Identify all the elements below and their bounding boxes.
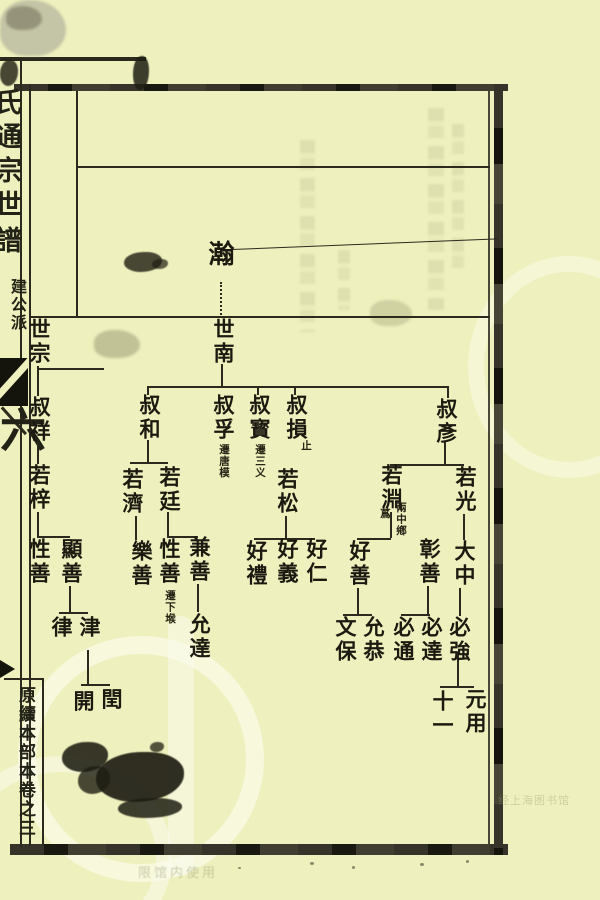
connector-line <box>357 588 359 614</box>
row-rule-upper <box>76 166 490 168</box>
connector-line <box>197 584 199 612</box>
ink-smudge <box>150 742 164 752</box>
person-name: 瀚 <box>209 240 232 269</box>
ink-smudge <box>152 259 168 269</box>
person-name: 叔寳 <box>246 394 269 442</box>
connector-line <box>135 516 137 540</box>
bleedthrough-column <box>300 140 315 332</box>
person-name: 閏 <box>98 688 121 712</box>
person-name: 性善 <box>26 538 49 586</box>
connector-line <box>459 588 461 616</box>
person-name: 元用 <box>462 688 485 736</box>
spine-title-char: 宗 <box>0 156 26 183</box>
spine-bracket-side <box>42 678 44 846</box>
connector-line <box>37 442 39 464</box>
person-name: 必強 <box>446 616 469 664</box>
connector-line <box>81 684 110 686</box>
person-note: 遷三义 <box>251 444 264 479</box>
person-name: 叔損 <box>283 394 306 442</box>
person-name: 若廷 <box>156 466 179 514</box>
person-name: 叔孚 <box>210 394 233 442</box>
person-name: 樂善 <box>128 540 151 588</box>
spine-title-char: 世 <box>0 190 26 217</box>
person-name: 必達 <box>418 616 441 664</box>
scanned-genealogy-page: 氏 通 宗 世 譜 建公派 六 原續本部本卷之三 瀚 世南 <box>0 0 600 900</box>
person-name: 允恭 <box>360 616 383 664</box>
connector-line <box>427 586 429 614</box>
row-rule-generation <box>29 316 490 318</box>
connector-line <box>147 386 449 388</box>
connector-dotted <box>220 282 222 318</box>
connector-line <box>447 386 449 398</box>
person-note: 兩中鄕 <box>392 502 405 537</box>
person-name: 大中 <box>451 540 474 588</box>
ink-smudge <box>118 798 182 818</box>
connector-line <box>167 512 169 536</box>
person-name: 好善 <box>346 540 369 588</box>
spine-pointer-mark <box>0 660 15 678</box>
person-name: 律 <box>48 616 71 640</box>
spine-title-char: 氏 <box>0 88 26 115</box>
person-name: 世南 <box>210 318 233 366</box>
spine-top-rule <box>0 57 146 61</box>
connector-line <box>37 512 39 536</box>
person-name: 好義 <box>274 538 297 586</box>
column-rule <box>76 91 78 317</box>
scan-speck <box>310 862 314 865</box>
person-name: 叔祥 <box>26 396 49 444</box>
person-name: 好禮 <box>243 540 266 588</box>
scan-speck <box>466 860 469 863</box>
ink-blotch <box>0 60 18 86</box>
page-right-border <box>494 84 503 855</box>
spine-bracket-top <box>4 678 42 680</box>
connector-line <box>87 650 89 684</box>
person-name: 津 <box>76 616 99 640</box>
person-note: 遷下堠 <box>161 590 174 625</box>
person-name: 文保 <box>332 616 355 664</box>
spine-branch-label: 建公派 <box>4 278 28 332</box>
connector-line <box>463 514 465 540</box>
connector-line <box>285 516 287 538</box>
person-name: 叔彥 <box>433 398 456 446</box>
page-bottom-border <box>10 844 508 855</box>
person-name: 叔和 <box>136 394 159 442</box>
connector-line <box>37 368 104 370</box>
spine-title-char: 譜 <box>0 226 26 253</box>
watermark-library-text: 经上海图书馆 <box>498 792 570 808</box>
person-name: 性善 <box>156 538 179 586</box>
person-note: 止 <box>297 440 310 452</box>
person-note: 蔿 <box>376 508 389 520</box>
fishtail-notch <box>0 358 28 406</box>
bleedthrough-smudge <box>94 330 140 358</box>
spine-title-char: 通 <box>0 122 26 149</box>
watermark-usage-text: 限馆内使用 <box>138 862 218 881</box>
fishtail-tab <box>0 358 28 406</box>
person-name: 好仁 <box>303 538 326 586</box>
connector-line <box>147 440 149 462</box>
connector-line <box>69 586 71 612</box>
person-name: 必通 <box>390 616 413 664</box>
person-name: 彰善 <box>416 538 439 586</box>
connector-line <box>221 364 223 386</box>
scan-shadow-dark <box>6 6 42 30</box>
spine-bottom-label: 原續本部本卷之三 <box>13 686 38 838</box>
person-name: 世宗 <box>26 318 49 366</box>
scan-speck <box>420 863 424 866</box>
person-name: 若濟 <box>119 468 142 516</box>
bleedthrough-smudge <box>370 300 412 326</box>
page-top-border <box>14 84 508 91</box>
person-name: 開 <box>70 690 93 714</box>
bleedthrough-column <box>338 250 350 310</box>
person-name: 若光 <box>452 466 475 514</box>
connector-line <box>37 366 39 396</box>
bleedthrough-column <box>452 124 464 276</box>
connector-line <box>130 462 168 464</box>
person-name: 允達 <box>186 613 209 661</box>
connector-line <box>59 612 88 614</box>
scan-speck <box>352 866 355 869</box>
bleedthrough-column <box>428 108 444 310</box>
person-note: 遷唐模 <box>215 444 228 479</box>
person-name: 顯善 <box>58 538 81 586</box>
person-name: 若松 <box>274 468 297 516</box>
person-name: 若梓 <box>26 464 49 512</box>
person-name: 十一 <box>429 690 452 738</box>
scan-speck <box>238 867 241 869</box>
chart-right-inner-rule <box>488 91 490 844</box>
person-name: 兼善 <box>186 536 209 584</box>
